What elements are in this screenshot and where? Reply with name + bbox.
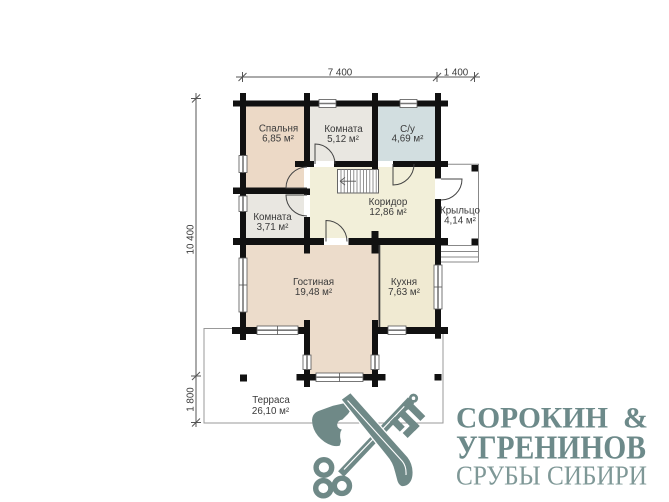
svg-text:10 400: 10 400 <box>186 224 197 255</box>
svg-text:7 400: 7 400 <box>328 68 353 79</box>
svg-text:7,63 м²: 7,63 м² <box>388 287 421 298</box>
svg-text:6,85 м²: 6,85 м² <box>262 134 295 145</box>
svg-text:19,48 м²: 19,48 м² <box>295 287 333 298</box>
svg-text:СРУБЫ СИБИРИ: СРУБЫ СИБИРИ <box>456 461 647 491</box>
svg-text:3,71 м²: 3,71 м² <box>257 222 290 233</box>
svg-text:4,69 м²: 4,69 м² <box>392 134 425 145</box>
svg-text:1 400: 1 400 <box>444 68 469 79</box>
svg-text:Терраса: Терраса <box>252 395 290 406</box>
svg-text:4,14 м²: 4,14 м² <box>444 216 477 227</box>
svg-text:1 800: 1 800 <box>186 387 197 412</box>
svg-text:26,10 м²: 26,10 м² <box>252 406 290 417</box>
svg-text:5,12 м²: 5,12 м² <box>327 134 360 145</box>
svg-text:12,86 м²: 12,86 м² <box>369 207 407 218</box>
